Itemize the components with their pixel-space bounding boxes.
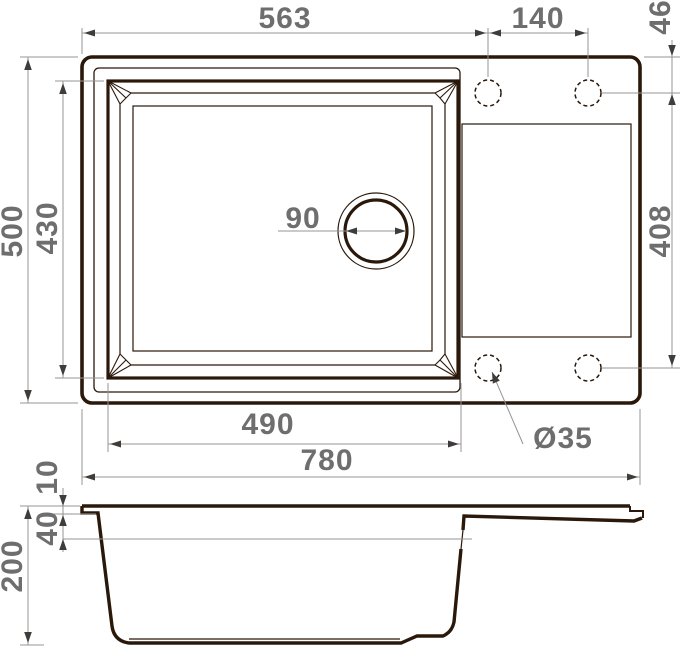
dim-label-faucet-hole-top-offset: 46 bbox=[644, 0, 677, 35]
faucet-hole-top-left bbox=[475, 80, 501, 106]
dim-label-overall-depth: 500 bbox=[0, 204, 29, 257]
rim-inner-contour bbox=[94, 68, 460, 392]
faucet-holes bbox=[475, 80, 601, 381]
bowl-contour-b bbox=[133, 106, 432, 351]
section-profile bbox=[82, 506, 642, 643]
faucet-hole-bottom-right bbox=[575, 355, 601, 381]
dim-label-faucet-hole-diameter: Ø35 bbox=[533, 422, 593, 455]
side-view bbox=[82, 506, 643, 643]
dim-label-rim-height: 10 bbox=[31, 459, 64, 494]
dim-label-drain-diameter: 90 bbox=[285, 202, 320, 235]
faucet-hole-top-right bbox=[575, 80, 601, 106]
sink-dimension-drawing: 563 140 46 500 430 408 90 490 780 Ø35 10… bbox=[0, 0, 682, 659]
dim-label-bowl-width: 490 bbox=[241, 408, 294, 441]
faucet-hole-bottom-left bbox=[475, 355, 501, 381]
drainboard-outline bbox=[462, 124, 631, 337]
section-right-end-step bbox=[630, 506, 643, 518]
dim-label-faucet-hole-spacing: 140 bbox=[511, 2, 564, 35]
dim-label-bowl-depth: 430 bbox=[31, 201, 64, 254]
dim-label-faucet-hole-span: 408 bbox=[644, 204, 677, 257]
dim-label-overall-height: 200 bbox=[0, 539, 29, 592]
dim-label-overall-width: 780 bbox=[300, 444, 353, 477]
top-view bbox=[82, 57, 640, 403]
dimension-arrowheads bbox=[24, 30, 676, 644]
dim-label-ledge-depth: 40 bbox=[31, 510, 64, 545]
leader-line-hole-diameter bbox=[492, 372, 523, 444]
dim-label-edge-to-faucet-hole: 563 bbox=[258, 2, 311, 35]
